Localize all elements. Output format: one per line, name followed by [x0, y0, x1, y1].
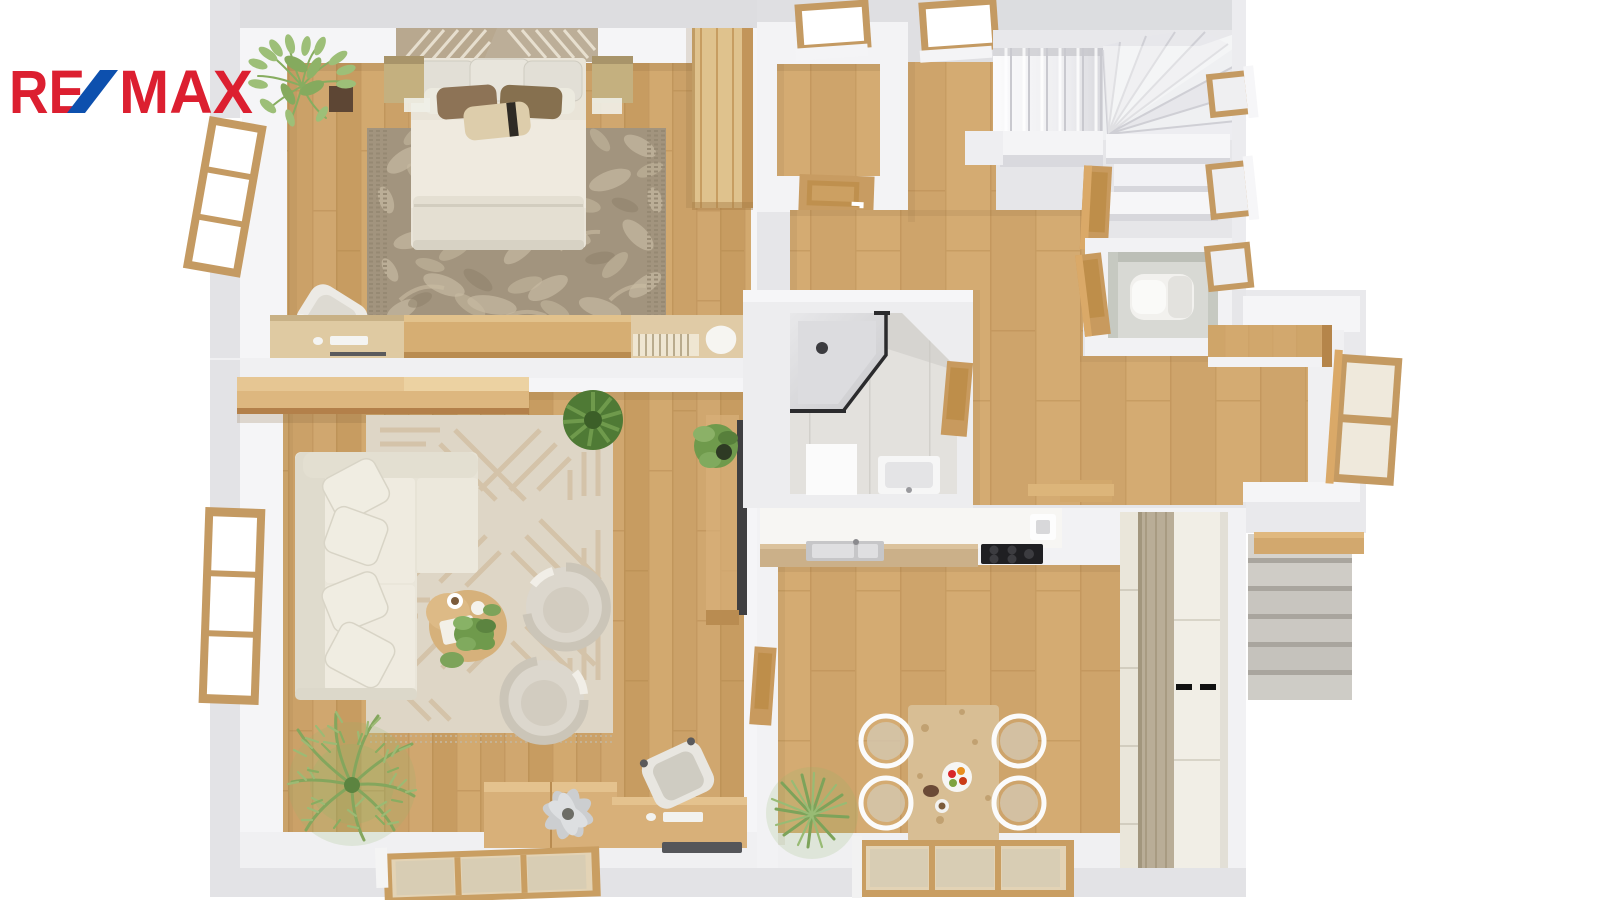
svg-text:RE: RE — [9, 58, 85, 126]
svg-text:MAX: MAX — [119, 58, 253, 126]
